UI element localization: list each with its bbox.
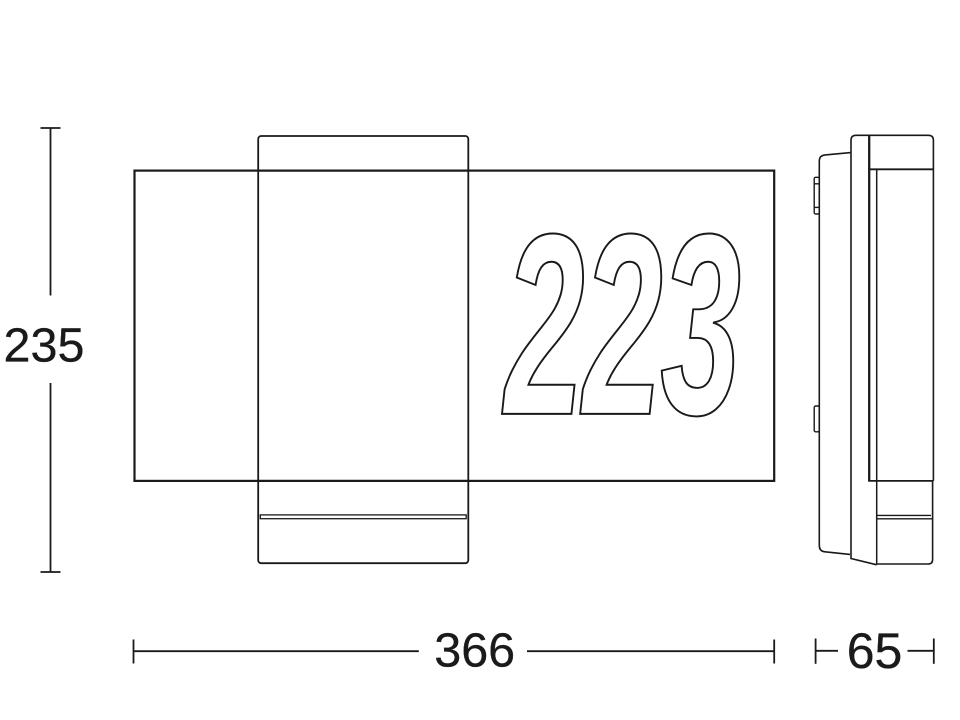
svg-text:366: 366 <box>434 624 515 678</box>
svg-text:235: 235 <box>4 319 85 373</box>
svg-text:65: 65 <box>847 623 903 679</box>
